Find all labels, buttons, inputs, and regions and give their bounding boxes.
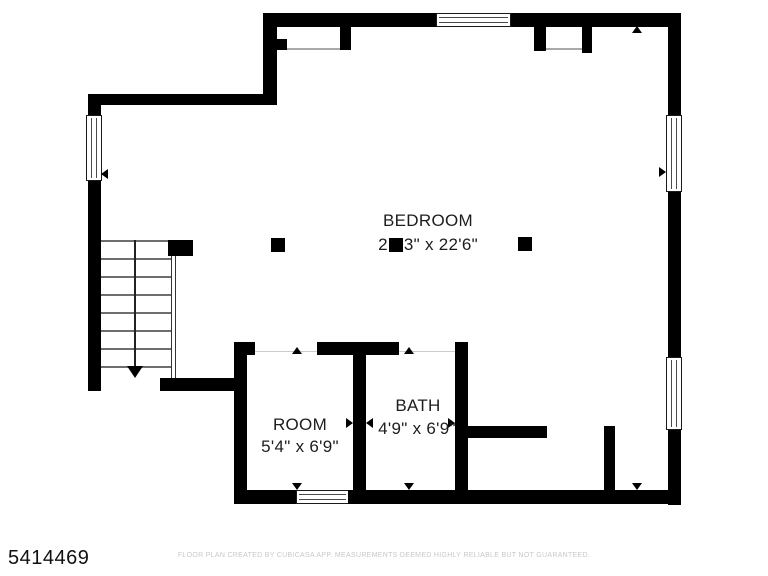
bay1-window-line: [287, 48, 340, 50]
bedroom-label: BEDROOM: [348, 211, 508, 231]
bay2-left-jamb: [534, 27, 546, 51]
wall-left-lower: [88, 181, 101, 391]
stair-treads: [101, 240, 171, 368]
stair-bottom-wall: [160, 378, 237, 391]
stair-direction-line: [134, 240, 136, 368]
bedroom-dimensions: 23" x 22'6": [338, 235, 518, 255]
room-label: ROOM: [250, 415, 350, 435]
room-name: ROOM: [273, 415, 327, 434]
bottom-wall-seg2: [348, 490, 681, 504]
window-pane: [299, 494, 346, 500]
window-right-upper: [666, 115, 682, 192]
closet-stub-wall: [604, 426, 615, 490]
room-dimensions: 5'4" x 6'9": [235, 437, 365, 457]
wall-right-upper: [668, 13, 681, 115]
wall-upper-left-horizontal: [88, 94, 277, 105]
window-right-lower: [666, 357, 682, 430]
wall-top-left-vertical: [263, 13, 277, 105]
window-left: [86, 115, 102, 181]
disclaimer-text: FLOOR PLAN CREATED BY CUBICASA APP. MEAS…: [0, 552, 768, 559]
door-marker-icon: [404, 347, 414, 354]
window-pane: [671, 118, 677, 189]
stair-down-arrow-icon: [127, 366, 143, 378]
window-pane: [91, 118, 97, 178]
column-marker: [271, 238, 285, 252]
window-pane: [671, 360, 677, 427]
bay1-right-jamb: [340, 27, 351, 50]
window-marker-icon: [659, 167, 666, 177]
bay2-window-line: [546, 48, 582, 50]
bedroom-dim-suffix: 3" x 22'6": [404, 235, 478, 254]
bath-name: BATH: [395, 396, 440, 415]
room-bath-divider-wall: [353, 342, 366, 491]
bottom-wall-seg1: [234, 490, 297, 504]
bay2-right-jamb: [582, 27, 592, 53]
window-marker-icon: [292, 483, 302, 490]
wall-left-upper: [88, 105, 101, 115]
room-dim: 5'4" x 6'9": [261, 437, 339, 456]
lower-top-wall-seg1: [234, 342, 255, 355]
window-top: [436, 13, 511, 27]
column-marker: [518, 237, 532, 251]
door-marker-icon: [292, 347, 302, 354]
wall-right-middle: [668, 192, 681, 357]
bedroom-name: BEDROOM: [383, 211, 473, 230]
bath-dim: 4'9" x 6'9": [378, 419, 456, 438]
column-marker: [389, 238, 403, 252]
window-room-bottom: [296, 490, 349, 504]
measure-arrow-icon: [240, 418, 247, 428]
bay1-left-notch: [277, 39, 287, 50]
bath-label: BATH: [368, 396, 468, 416]
stair-top-wall-block: [168, 240, 193, 256]
window-pane: [439, 17, 508, 23]
bath-dimensions: 4'9" x 6'9": [352, 419, 482, 439]
opening-marker-icon: [632, 483, 642, 490]
opening-marker-icon: [632, 26, 642, 33]
window-marker-icon: [101, 169, 108, 179]
opening-marker-icon: [404, 483, 414, 490]
stair-handrail: [171, 256, 176, 378]
room-door-threshold: [255, 351, 317, 352]
floor-plan: BEDROOM 23" x 22'6" ROOM 5'4" x 6'9" BAT…: [0, 0, 768, 576]
bedroom-dim-prefix: 2: [378, 235, 388, 254]
